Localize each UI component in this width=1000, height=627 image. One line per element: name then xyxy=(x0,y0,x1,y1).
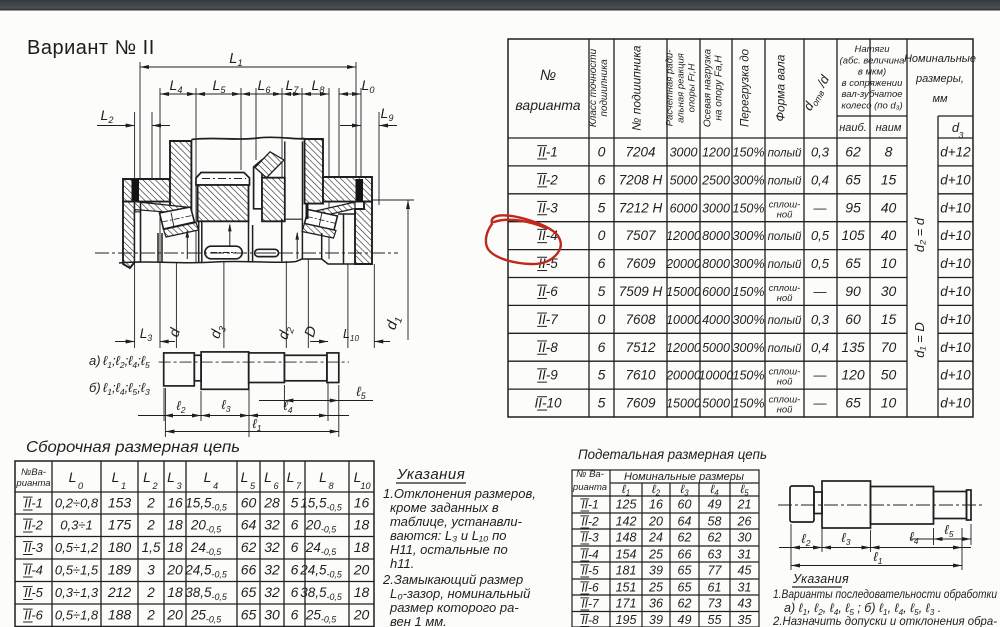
svg-text:—: — xyxy=(813,368,828,383)
svg-text:24: 24 xyxy=(648,531,663,545)
svg-text:0,3: 0,3 xyxy=(811,312,830,327)
svg-text:5: 5 xyxy=(250,481,256,491)
svg-text:II-6: II-6 xyxy=(581,581,599,595)
svg-text:49: 49 xyxy=(678,613,692,627)
svg-text:189: 189 xyxy=(108,562,132,578)
svg-text:0,5: 0,5 xyxy=(811,228,830,243)
svg-text:на опору Fа,Н: на опору Fа,Н xyxy=(714,55,725,121)
svg-text:3000: 3000 xyxy=(702,201,730,215)
svg-text:8000: 8000 xyxy=(702,257,730,271)
svg-text:№ подшипника: № подшипника xyxy=(630,45,644,130)
svg-text:II-8: II-8 xyxy=(538,340,558,355)
svg-text:10000: 10000 xyxy=(666,313,701,327)
svg-text:1.Отклонения размеров,: 1.Отклонения размеров, xyxy=(383,486,536,501)
svg-text:II-1: II-1 xyxy=(581,498,598,512)
svg-text:1200: 1200 xyxy=(702,145,730,159)
svg-text:195: 195 xyxy=(616,613,637,627)
svg-text:62: 62 xyxy=(678,531,692,545)
svg-text:L: L xyxy=(69,469,77,485)
svg-text:151: 151 xyxy=(616,581,637,595)
svg-text:полый: полый xyxy=(768,315,802,327)
svg-text:0,3: 0,3 xyxy=(811,144,830,159)
svg-text:2500: 2500 xyxy=(701,173,730,187)
svg-text:6: 6 xyxy=(291,562,299,578)
svg-text:d+10: d+10 xyxy=(940,396,971,411)
svg-text:II-7: II-7 xyxy=(581,597,600,611)
svg-text:полый: полый xyxy=(768,147,802,159)
svg-text:150%: 150% xyxy=(733,201,765,215)
svg-text:32: 32 xyxy=(264,584,280,600)
svg-text:размеры,: размеры, xyxy=(915,73,964,85)
svg-text:65: 65 xyxy=(845,171,861,187)
svg-text:ной: ной xyxy=(777,377,794,388)
svg-text:7208 Н: 7208 Н xyxy=(619,172,663,187)
svg-text:8: 8 xyxy=(328,481,334,491)
svg-text:6000: 6000 xyxy=(702,285,730,299)
svg-text:16: 16 xyxy=(354,495,370,511)
svg-text:d+10: d+10 xyxy=(940,228,971,243)
svg-text:1,5: 1,5 xyxy=(142,540,161,555)
svg-text:8000: 8000 xyxy=(702,229,730,243)
svg-text:кроме заданных в: кроме заданных в xyxy=(390,500,499,515)
svg-text:65: 65 xyxy=(241,607,257,623)
svg-text:6: 6 xyxy=(273,481,279,491)
svg-text:II-4: II-4 xyxy=(538,228,558,243)
svg-text:15: 15 xyxy=(881,171,897,187)
svg-text:28: 28 xyxy=(263,495,280,511)
svg-text:d+10: d+10 xyxy=(940,172,971,187)
svg-text:31: 31 xyxy=(738,581,752,595)
svg-text:300%: 300% xyxy=(733,173,765,187)
svg-text:d+10: d+10 xyxy=(940,200,971,215)
svg-text:77: 77 xyxy=(708,564,723,578)
svg-text:(абс. величина: (абс. величина xyxy=(840,55,905,66)
svg-text:Натяги: Натяги xyxy=(855,44,891,55)
svg-text:300%: 300% xyxy=(733,257,765,271)
svg-text:—: — xyxy=(813,284,828,299)
svg-text:181: 181 xyxy=(616,564,637,578)
svg-text:полый: полый xyxy=(768,259,802,271)
svg-text:65: 65 xyxy=(678,581,692,595)
svg-text:№Ва-: №Ва- xyxy=(21,467,46,478)
svg-text:150%: 150% xyxy=(733,369,765,383)
svg-text:6000: 6000 xyxy=(670,201,698,215)
svg-text:II-6: II-6 xyxy=(538,284,558,299)
svg-text:6: 6 xyxy=(598,171,606,187)
svg-text:60: 60 xyxy=(845,311,861,327)
svg-text:Н11, остальные по: Н11, остальные по xyxy=(390,542,508,557)
svg-text:6: 6 xyxy=(291,517,299,533)
svg-text:6: 6 xyxy=(598,255,606,271)
svg-text:5: 5 xyxy=(598,199,606,215)
svg-text:30: 30 xyxy=(264,607,280,623)
svg-text:300%: 300% xyxy=(733,341,765,355)
svg-text:6: 6 xyxy=(291,607,299,623)
svg-text:61: 61 xyxy=(708,581,722,595)
svg-text:18: 18 xyxy=(167,539,183,555)
svg-text:7512: 7512 xyxy=(625,340,656,355)
svg-text:d₁ = D: d₁ = D xyxy=(912,322,927,358)
svg-text:7609: 7609 xyxy=(625,396,656,411)
svg-text:8: 8 xyxy=(885,143,893,159)
svg-text:105: 105 xyxy=(841,227,865,243)
svg-text:L₀-зазор, номинальный: L₀-зазор, номинальный xyxy=(390,586,530,601)
svg-text:5: 5 xyxy=(598,367,606,383)
svg-text:154: 154 xyxy=(616,548,637,562)
svg-text:6: 6 xyxy=(291,584,299,600)
svg-text:II-4: II-4 xyxy=(581,548,599,562)
svg-text:40: 40 xyxy=(881,199,897,215)
svg-text:188: 188 xyxy=(108,607,132,623)
svg-text:43: 43 xyxy=(738,597,752,611)
svg-text:ваются: L₃ и L₁₀ по: ваются: L₃ и L₁₀ по xyxy=(390,528,507,543)
svg-text:63: 63 xyxy=(708,548,722,562)
svg-text:32: 32 xyxy=(264,562,280,578)
svg-text:3000: 3000 xyxy=(670,145,698,159)
svg-text:0,3÷1: 0,3÷1 xyxy=(60,518,92,533)
svg-text:наим: наим xyxy=(876,122,902,134)
svg-text:62: 62 xyxy=(708,531,722,545)
svg-text:6: 6 xyxy=(598,339,606,355)
svg-text:0,3÷1,3: 0,3÷1,3 xyxy=(55,585,99,600)
svg-text:64: 64 xyxy=(241,517,257,533)
svg-text:II-1: II-1 xyxy=(24,496,43,511)
svg-text:90: 90 xyxy=(845,283,861,299)
svg-text:73: 73 xyxy=(708,597,722,611)
svg-text:вен 1 мм.: вен 1 мм. xyxy=(390,614,447,627)
svg-text:2.Замыкающий размер: 2.Замыкающий размер xyxy=(382,572,523,587)
svg-text:Сборочная размерная цепь: Сборочная размерная цепь xyxy=(26,439,240,456)
svg-text:Указания: Указания xyxy=(792,572,849,586)
svg-text:180: 180 xyxy=(108,539,132,555)
svg-text:L: L xyxy=(112,469,120,485)
svg-text:10: 10 xyxy=(360,481,371,491)
svg-text:Подетальная размерная цепь: Подетальная размерная цепь xyxy=(578,446,767,462)
svg-text:II-5: II-5 xyxy=(581,564,599,578)
svg-text:подшипника: подшипника xyxy=(599,59,610,117)
svg-text:18: 18 xyxy=(354,517,370,533)
svg-text:II-3: II-3 xyxy=(24,540,44,555)
svg-text:Номинальные: Номинальные xyxy=(904,53,976,65)
svg-text:70: 70 xyxy=(881,339,897,355)
svg-text:№ Ва-: № Ва- xyxy=(576,469,604,480)
svg-text:d+10: d+10 xyxy=(940,312,971,327)
svg-text:размер которого ра-: размер которого ра- xyxy=(389,600,519,615)
svg-text:II-10: II-10 xyxy=(534,396,562,411)
svg-text:4000: 4000 xyxy=(702,313,730,327)
svg-text:—: — xyxy=(813,200,828,215)
svg-text:№: № xyxy=(540,67,556,84)
svg-text:d+10: d+10 xyxy=(940,368,971,383)
svg-text:0,5: 0,5 xyxy=(811,256,830,271)
svg-text:0,5÷1,8: 0,5÷1,8 xyxy=(55,608,99,623)
svg-text:0,5÷1,5: 0,5÷1,5 xyxy=(55,563,99,578)
svg-text:10: 10 xyxy=(881,255,897,271)
svg-text:б): б) xyxy=(89,380,101,395)
svg-text:II-1: II-1 xyxy=(538,144,558,159)
svg-text:в мкм): в мкм) xyxy=(858,67,886,78)
svg-text:0: 0 xyxy=(598,227,606,243)
svg-text:варианта: варианта xyxy=(515,97,580,113)
svg-text:3: 3 xyxy=(147,563,155,578)
svg-text:0: 0 xyxy=(598,311,606,327)
svg-text:d+10: d+10 xyxy=(940,340,971,355)
svg-text:II-9: II-9 xyxy=(538,368,558,383)
svg-text:16: 16 xyxy=(167,495,183,511)
svg-text:212: 212 xyxy=(107,584,132,600)
svg-text:наиб.: наиб. xyxy=(839,122,867,134)
svg-text:26: 26 xyxy=(737,515,752,529)
svg-text:64: 64 xyxy=(678,515,692,529)
svg-text:15000: 15000 xyxy=(666,285,701,299)
svg-text:40: 40 xyxy=(881,227,897,243)
svg-text:5: 5 xyxy=(598,395,606,411)
svg-text:Перегрузка до: Перегрузка до xyxy=(740,48,752,127)
svg-text:Указания: Указания xyxy=(396,466,465,483)
svg-text:20: 20 xyxy=(166,607,183,623)
svg-text:62: 62 xyxy=(845,143,861,159)
svg-text:18: 18 xyxy=(354,539,370,555)
svg-text:20000: 20000 xyxy=(665,257,701,271)
svg-text:7608: 7608 xyxy=(625,312,656,327)
svg-text:L: L xyxy=(287,469,295,485)
svg-text:7509 Н: 7509 Н xyxy=(619,284,663,299)
svg-text:полый: полый xyxy=(768,175,802,187)
svg-text:L: L xyxy=(241,469,249,485)
svg-text:2: 2 xyxy=(151,481,157,491)
svg-text:колесо (по d₃): колесо (по d₃) xyxy=(841,101,902,112)
svg-text:30: 30 xyxy=(881,283,897,299)
svg-text:d+10: d+10 xyxy=(940,284,971,299)
svg-text:7610: 7610 xyxy=(625,368,656,383)
svg-text:65: 65 xyxy=(241,584,257,600)
svg-text:II-6: II-6 xyxy=(24,608,44,623)
svg-text:0,4: 0,4 xyxy=(811,172,829,187)
svg-text:таблице, устанавли-: таблице, устанавли- xyxy=(390,514,523,529)
svg-text:а): а) xyxy=(89,353,101,368)
svg-text:135: 135 xyxy=(841,339,865,355)
svg-text:25: 25 xyxy=(648,548,663,562)
svg-text:d+10: d+10 xyxy=(940,256,971,271)
svg-text:5000: 5000 xyxy=(702,341,730,355)
svg-text:2: 2 xyxy=(146,496,155,511)
svg-text:20: 20 xyxy=(166,562,183,578)
svg-text:49: 49 xyxy=(708,498,722,512)
svg-text:—: — xyxy=(813,396,828,411)
svg-text:5000: 5000 xyxy=(670,173,698,187)
svg-text:12000: 12000 xyxy=(666,229,701,243)
svg-text:d₂ = d: d₂ = d xyxy=(912,217,927,252)
svg-text:36: 36 xyxy=(649,597,663,611)
svg-text:125: 125 xyxy=(616,498,637,512)
svg-text:7: 7 xyxy=(296,481,302,491)
svg-text:65: 65 xyxy=(845,255,861,271)
svg-text:ной: ной xyxy=(777,209,794,220)
svg-text:95: 95 xyxy=(845,199,861,215)
svg-text:II-8: II-8 xyxy=(581,613,599,627)
svg-text:опоры Fr,Н: опоры Fr,Н xyxy=(687,64,698,113)
svg-text:II-4: II-4 xyxy=(24,563,43,578)
svg-text:L: L xyxy=(319,469,327,485)
svg-text:5: 5 xyxy=(291,495,299,511)
svg-text:300%: 300% xyxy=(733,313,765,327)
svg-text:45: 45 xyxy=(738,564,752,578)
svg-text:0: 0 xyxy=(78,481,84,491)
svg-text:10000: 10000 xyxy=(699,369,734,383)
svg-text:62: 62 xyxy=(678,597,692,611)
svg-text:1: 1 xyxy=(121,481,126,491)
svg-text:150%: 150% xyxy=(733,397,765,411)
svg-text:20: 20 xyxy=(353,562,370,578)
svg-text:120: 120 xyxy=(841,367,865,383)
svg-text:25: 25 xyxy=(648,581,663,595)
svg-text:3: 3 xyxy=(959,130,964,140)
svg-text:148: 148 xyxy=(616,531,637,545)
svg-text:2: 2 xyxy=(146,518,155,533)
svg-text:12000: 12000 xyxy=(666,341,701,355)
svg-text:II-5: II-5 xyxy=(24,585,44,600)
svg-text:альная реакция: альная реакция xyxy=(676,53,687,123)
svg-text:15000: 15000 xyxy=(666,397,701,411)
svg-text:3: 3 xyxy=(176,481,182,491)
svg-text:L: L xyxy=(167,469,175,485)
svg-text:Форма вала: Форма вала xyxy=(774,54,788,121)
svg-text:0: 0 xyxy=(598,143,606,159)
svg-text:ной: ной xyxy=(777,405,794,416)
svg-text:0,4: 0,4 xyxy=(811,340,829,355)
svg-text:18: 18 xyxy=(354,584,370,600)
svg-text:в сопряжении: в сопряжении xyxy=(842,78,903,89)
svg-text:7212 Н: 7212 Н xyxy=(619,200,663,215)
svg-text:L: L xyxy=(143,469,151,485)
svg-text:0,2÷0,8: 0,2÷0,8 xyxy=(55,496,99,511)
svg-text:21: 21 xyxy=(737,498,752,512)
svg-text:Вариант № II: Вариант № II xyxy=(27,37,155,59)
svg-text:2: 2 xyxy=(146,585,155,600)
svg-text:II-3: II-3 xyxy=(538,200,558,215)
svg-text:полый: полый xyxy=(768,343,802,355)
svg-text:h11.: h11. xyxy=(390,556,414,571)
svg-text:31: 31 xyxy=(738,548,752,562)
svg-text:50: 50 xyxy=(881,367,897,383)
svg-text:142: 142 xyxy=(616,515,637,529)
svg-text:рианта: рианта xyxy=(572,482,607,493)
svg-text:20: 20 xyxy=(648,515,663,529)
svg-text:II-3: II-3 xyxy=(581,531,599,545)
svg-text:рианта: рианта xyxy=(15,478,50,489)
svg-text:15: 15 xyxy=(881,311,897,327)
svg-text:65: 65 xyxy=(845,395,861,411)
svg-text:16: 16 xyxy=(649,498,663,512)
svg-text:2: 2 xyxy=(146,608,155,623)
svg-text:32: 32 xyxy=(264,517,280,533)
svg-text:150%: 150% xyxy=(733,145,765,159)
svg-text:II-7: II-7 xyxy=(538,312,558,327)
svg-text:39: 39 xyxy=(649,613,663,627)
svg-text:171: 171 xyxy=(616,597,637,611)
svg-text:150%: 150% xyxy=(733,285,765,299)
svg-text:Расчетная ради-: Расчетная ради- xyxy=(665,50,676,127)
svg-text:32: 32 xyxy=(264,539,280,555)
svg-text:5000: 5000 xyxy=(702,397,730,411)
svg-text:7507: 7507 xyxy=(625,228,656,243)
svg-text:1.Варианты последовательности: 1.Варианты последовательности обработки xyxy=(773,587,997,601)
svg-text:18: 18 xyxy=(167,584,183,600)
svg-text:20000: 20000 xyxy=(665,369,701,383)
svg-text:полый: полый xyxy=(768,231,802,243)
svg-text:4: 4 xyxy=(213,481,218,491)
svg-text:20: 20 xyxy=(353,607,370,623)
svg-text:L: L xyxy=(204,469,212,485)
svg-text:Осевая нагрузка: Осевая нагрузка xyxy=(703,48,714,127)
svg-text:60: 60 xyxy=(678,498,692,512)
svg-text:d+12: d+12 xyxy=(940,144,971,159)
svg-text:мм: мм xyxy=(932,93,948,105)
svg-text:18: 18 xyxy=(167,517,183,533)
svg-text:39: 39 xyxy=(649,564,663,578)
svg-text:Класс точности: Класс точности xyxy=(588,48,599,127)
svg-text:55: 55 xyxy=(708,613,722,627)
svg-text:0,5÷1,2: 0,5÷1,2 xyxy=(55,540,99,555)
svg-text:300%: 300% xyxy=(733,229,765,243)
svg-text:6: 6 xyxy=(291,539,299,555)
svg-text:62: 62 xyxy=(241,539,257,555)
svg-text:58: 58 xyxy=(708,515,722,529)
svg-text:7609: 7609 xyxy=(625,256,656,271)
svg-text:30: 30 xyxy=(738,531,752,545)
svg-text:5: 5 xyxy=(598,283,606,299)
svg-text:2.Назначить допуски и откло: 2.Назначить допуски и отклонения обра- xyxy=(772,614,997,627)
svg-text:60: 60 xyxy=(241,495,257,511)
svg-text:175: 175 xyxy=(108,517,132,533)
svg-text:L: L xyxy=(264,469,272,485)
svg-text:II-2: II-2 xyxy=(581,515,599,529)
svg-text:65: 65 xyxy=(678,564,692,578)
svg-text:35: 35 xyxy=(738,613,752,627)
svg-text:II-2: II-2 xyxy=(24,518,44,533)
svg-text:вал-зубчатое: вал-зубчатое xyxy=(841,89,902,100)
svg-text:10: 10 xyxy=(881,395,897,411)
svg-text:66: 66 xyxy=(241,562,257,578)
svg-text:ной: ной xyxy=(777,293,794,304)
svg-text:153: 153 xyxy=(108,495,132,511)
svg-text:66: 66 xyxy=(678,548,692,562)
svg-text:II-2: II-2 xyxy=(538,172,558,187)
svg-text:7204: 7204 xyxy=(625,144,655,159)
